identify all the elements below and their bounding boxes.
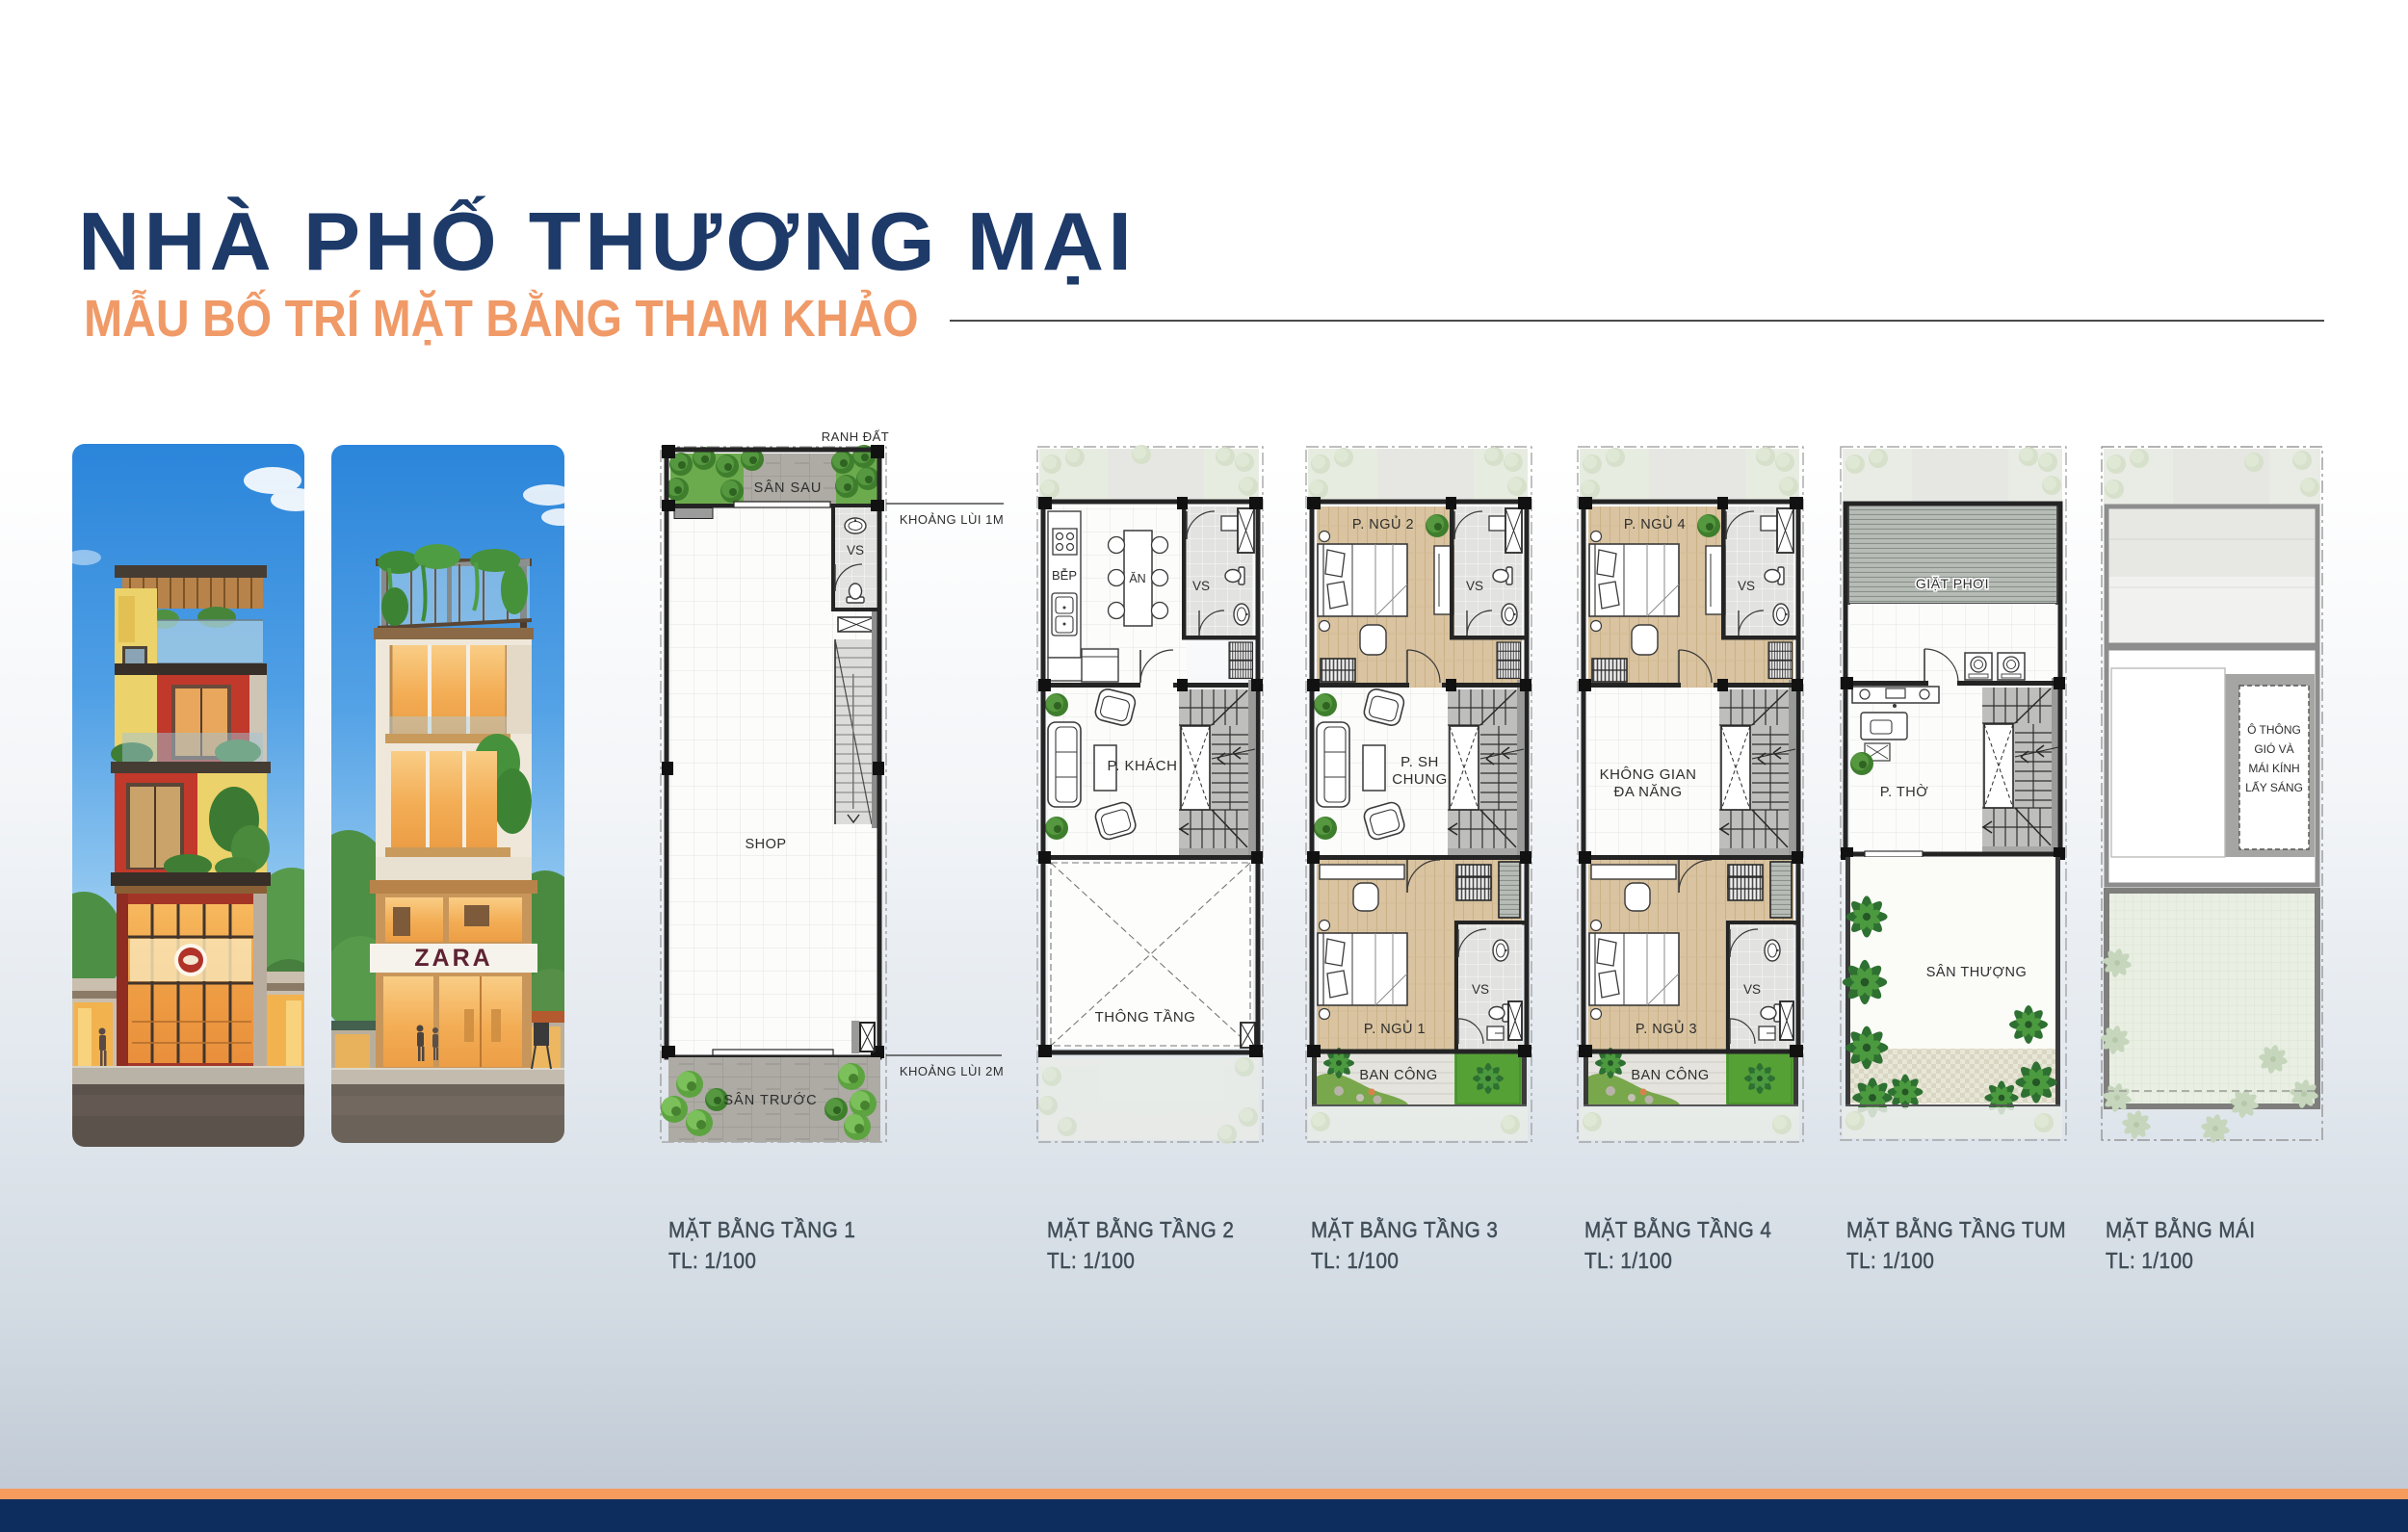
svg-text:ĐA NĂNG: ĐA NĂNG: [1613, 784, 1682, 800]
svg-text:KHOẢNG LÙI 2M: KHOẢNG LÙI 2M: [900, 1064, 1004, 1078]
svg-text:BỄP: BỄP: [1052, 568, 1077, 583]
svg-text:CHUNG: CHUNG: [1392, 771, 1448, 788]
svg-text:ĂN: ĂN: [1129, 571, 1145, 585]
svg-text:KHÔNG GIAN: KHÔNG GIAN: [1600, 766, 1697, 783]
svg-text:P. THỜ: P. THỜ: [1880, 784, 1928, 800]
svg-text:MÁI KÍNH: MÁI KÍNH: [2248, 761, 2299, 775]
svg-text:SHOP: SHOP: [745, 837, 786, 852]
svg-text:ZARA: ZARA: [414, 945, 492, 972]
svg-text:P. NGỦ 1: P. NGỦ 1: [1364, 1020, 1426, 1037]
svg-text:VS: VS: [1192, 579, 1210, 593]
svg-text:SÂN THƯỢNG: SÂN THƯỢNG: [1926, 964, 2027, 980]
svg-text:SÂN SAU: SÂN SAU: [754, 480, 823, 496]
svg-text:VS: VS: [847, 543, 864, 558]
svg-text:GIẶT PHƠI: GIẶT PHƠI: [1916, 576, 1989, 591]
svg-text:Ô THÔNG: Ô THÔNG: [2247, 722, 2301, 737]
svg-text:GIÓ VÀ: GIÓ VÀ: [2254, 741, 2293, 756]
svg-text:P. SH: P. SH: [1400, 754, 1439, 770]
svg-text:RANH ĐẤT: RANH ĐẤT: [822, 429, 889, 444]
svg-text:THÔNG TẦNG: THÔNG TẦNG: [1095, 1009, 1196, 1026]
svg-text:P. NGỦ 4: P. NGỦ 4: [1624, 515, 1686, 532]
svg-text:VS: VS: [1466, 579, 1483, 593]
svg-text:SÂN TRƯỚC: SÂN TRƯỚC: [723, 1092, 817, 1108]
svg-text:VS: VS: [1472, 982, 1489, 997]
svg-text:KHOẢNG LÙI 1M: KHOẢNG LÙI 1M: [900, 512, 1004, 527]
svg-text:P. NGỦ 3: P. NGỦ 3: [1636, 1020, 1697, 1037]
svg-text:BAN CÔNG: BAN CÔNG: [1631, 1067, 1709, 1083]
svg-text:P. NGỦ 2: P. NGỦ 2: [1352, 515, 1414, 532]
svg-text:P. KHÁCH: P. KHÁCH: [1108, 758, 1178, 774]
svg-text:LẤY SÁNG: LẤY SÁNG: [2245, 780, 2303, 794]
svg-text:BAN CÔNG: BAN CÔNG: [1359, 1067, 1437, 1083]
